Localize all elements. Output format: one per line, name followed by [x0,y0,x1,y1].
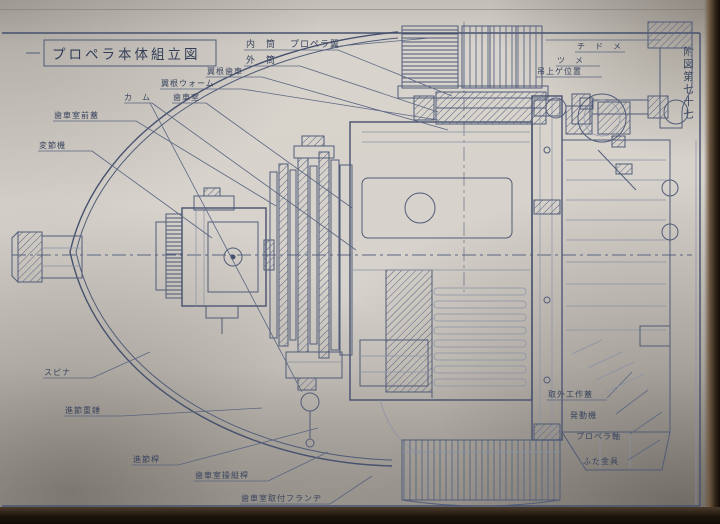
label-inner-cylinder: 内 筒 [246,38,276,50]
label-gear-chamber-control-rod: 歯車室操縦桿 [195,470,249,480]
photo-right-edge [704,0,720,524]
photo-bottom-edge [0,507,720,524]
label-gear-chamber: 歯車室 [173,92,200,102]
hub-barrel [340,122,532,454]
label-removal-work-cover: 取外工作蓋 [548,389,593,399]
rear-flange [532,96,562,440]
label-cover-fitting: ふた金具 [583,456,619,466]
title-block: プロペラ本体組立図 [26,40,216,66]
blade-shank [398,26,548,98]
label-propeller-blade: プロペラ翼 [290,39,340,50]
counterweight-band [402,440,560,506]
label-propeller-shaft: プロペラ軸 [576,431,621,441]
label-pitch-change-rod: 進節桿 [133,454,160,464]
label-cam: カ ム [124,93,151,102]
photo-of-blueprint: プロペラ本体組立図 附図第七十七 [0,0,720,524]
spinner-outline [70,32,398,466]
label-blade-root-gear: 翼根歯車 [207,66,243,76]
drawing-title: プロペラ本体組立図 [52,47,201,63]
label-gear-chamber-mount-flange: 歯車室取付フランヂ [241,493,322,503]
assembly-drawing: プロペラ本体組立図 附図第七十七 [0,0,720,524]
label-lift-position: 吊上ゲ位置 [537,66,582,76]
gear-plate-stack [270,136,342,447]
label-engine: 発動機 [570,410,597,420]
label-stopper: チ ド メ [577,42,622,51]
label-spinner: スピナ [44,368,71,377]
label-pitch-change-weight: 進節重錘 [65,405,101,415]
label-pitch-change-mechanism: 変節機 [39,140,66,150]
label-gear-chamber-front-cover: 歯車室前蓋 [54,110,99,120]
label-outer-cylinder: 外 筒 [246,54,276,66]
label-claw: ツ メ [557,56,584,65]
label-blade-root-worm: 翼根ウォーム [161,78,215,88]
